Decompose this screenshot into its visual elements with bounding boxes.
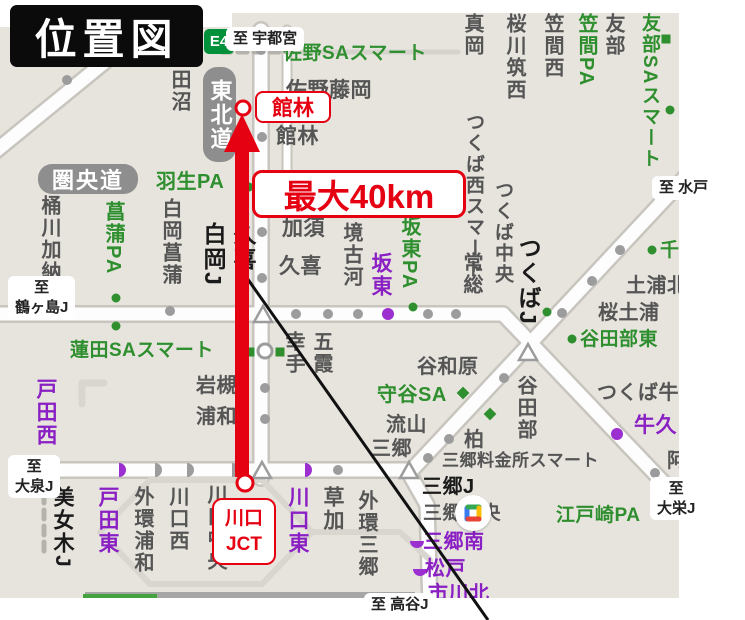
map-marker-dot <box>451 309 461 319</box>
map-marker-dot <box>499 373 509 383</box>
direction-tag: 至 大泉J <box>8 455 60 498</box>
map-marker-dot <box>333 465 343 475</box>
tohoku-expwy-badge: 東北道 <box>203 67 236 162</box>
map-marker-dot <box>260 383 270 393</box>
map-marker-dot <box>257 132 267 142</box>
map-label: つくば西スマート <box>464 112 483 280</box>
map-marker-jct-circle <box>258 344 272 358</box>
map-marker-dot <box>648 246 657 255</box>
map-marker-dot <box>409 303 418 312</box>
tatebayashi-label-box: 館林 <box>255 91 331 123</box>
map-label: 谷田部東 <box>580 330 658 351</box>
map-label: 土浦北 <box>626 276 679 298</box>
map-label: 久喜 <box>231 222 254 272</box>
schematic-road-map: 佐野SAスマート佐野藤岡館林田沼真岡桜川筑西笠間西笠間PA友部友部SAスマート羽… <box>0 0 679 598</box>
map-label: つくばJ <box>516 236 539 326</box>
map-label: 坂東 <box>370 252 391 298</box>
map-label: 桜土浦 <box>598 303 660 325</box>
map-marker-dot <box>615 245 625 255</box>
map-label: 笠間PA <box>576 13 596 87</box>
direction-tag: 至 高谷J <box>364 593 436 617</box>
map-marker-dot <box>323 309 333 319</box>
map-label: 市川北 <box>428 584 490 598</box>
map-marker-dot <box>666 106 675 115</box>
direction-tag: 至 宇都宮 <box>226 27 304 51</box>
map-label: 蓮田SAスマート <box>70 341 214 362</box>
direction-tag: 至 鶴ヶ島J <box>8 276 75 319</box>
map-label: 戸田西 <box>35 378 56 447</box>
map-label: 幸手 <box>283 331 303 375</box>
map-label: 五霞 <box>311 331 331 375</box>
map-label: 三郷料金所スマート <box>442 452 599 470</box>
map-marker-dot <box>543 308 552 317</box>
map-label: 真岡 <box>462 13 482 57</box>
map-label: 三郷南 <box>423 532 485 554</box>
map-label: 桶川加納 <box>39 195 59 283</box>
map-label: 江戸崎PA <box>556 506 640 527</box>
map-label: 三郷 <box>371 439 412 461</box>
map-marker-dot <box>112 322 121 331</box>
map-label: 加須 <box>282 218 325 241</box>
map-marker-dot <box>112 294 121 303</box>
map-label: 川口東 <box>287 486 308 555</box>
map-marker-dot <box>557 308 567 318</box>
map-label: 戸田東 <box>97 486 118 555</box>
map-marker-dot <box>62 75 72 85</box>
map-label: 流山 <box>386 415 427 437</box>
kawaguchi-jct-box: 川口 JCT <box>212 498 276 565</box>
location-map: 佐野SAスマート佐野藤岡館林田沼真岡桜川筑西笠間西笠間PA友部友部SAスマート羽… <box>0 0 745 620</box>
map-marker-sq <box>662 35 671 44</box>
map-label: 牛久 <box>634 415 677 438</box>
map-label: 羽生PA <box>156 172 224 194</box>
max-distance-box: 最大40km <box>252 170 466 218</box>
map-label: 川口西 <box>167 486 187 552</box>
map-label: 桜川筑西 <box>504 13 524 101</box>
direction-tag: 至 大栄J <box>650 477 702 520</box>
map-label: 阿見東 <box>667 451 679 473</box>
map-label: 境古河 <box>341 222 361 288</box>
l-stub-road <box>82 383 104 404</box>
map-label: つくば中央 <box>493 180 512 285</box>
map-marker-dot <box>382 308 394 320</box>
map-marker-dot <box>587 276 597 286</box>
map-label: 柏 <box>464 430 485 452</box>
map-marker-dot <box>568 335 577 344</box>
map-marker-dia <box>484 408 497 421</box>
map-label: 田沼 <box>169 69 189 113</box>
map-label: 佐野SAスマート <box>283 44 427 65</box>
map-label: 松戸 <box>425 559 466 581</box>
map-label: 岩槻 <box>196 376 237 398</box>
map-label: 友部SAスマート <box>640 13 659 169</box>
map-label: 浦和 <box>196 407 237 429</box>
map-label: 守谷SA <box>377 385 447 407</box>
map-marker-dot <box>353 309 363 319</box>
map-label: 笠間西 <box>542 13 562 79</box>
map-label: 坂東PA <box>399 216 419 290</box>
map-label: 白岡J <box>201 222 224 287</box>
map-label: 外環三郷 <box>356 490 376 578</box>
map-label: 草加 <box>322 486 343 532</box>
map-label: 白岡菖蒲 <box>160 198 180 286</box>
direction-tag: 至 水戸 <box>652 176 715 200</box>
map-label: つくば牛久 <box>597 383 679 405</box>
map-label: 美女木J <box>52 486 73 569</box>
map-label: 菖蒲PA <box>103 201 123 275</box>
map-marker-sq <box>246 348 255 357</box>
kenodo-expwy-badge: 圏央道 <box>38 164 138 194</box>
map-marker-dot <box>611 428 623 440</box>
map-label: 千 <box>660 241 679 262</box>
bottom-green-segment <box>83 594 157 598</box>
map-label: 外環浦和 <box>132 486 152 574</box>
map-marker-dot <box>423 453 433 463</box>
map-marker-dot <box>260 414 270 424</box>
map-label: 谷田部 <box>515 375 535 441</box>
map-marker-dot <box>165 306 175 316</box>
map-marker-dot <box>423 309 433 319</box>
page-title: 位置図 <box>10 5 203 67</box>
map-label: 友部 <box>603 13 623 57</box>
map-marker-dot <box>444 434 454 444</box>
map-label: 館林 <box>276 126 319 149</box>
map-label: 久喜 <box>279 256 322 279</box>
map-marker-dot <box>257 227 267 237</box>
map-marker-dot <box>257 273 267 283</box>
map-marker-dot <box>291 309 301 319</box>
map-label: 谷和原 <box>417 357 479 379</box>
colorful-app-icon <box>455 495 491 531</box>
